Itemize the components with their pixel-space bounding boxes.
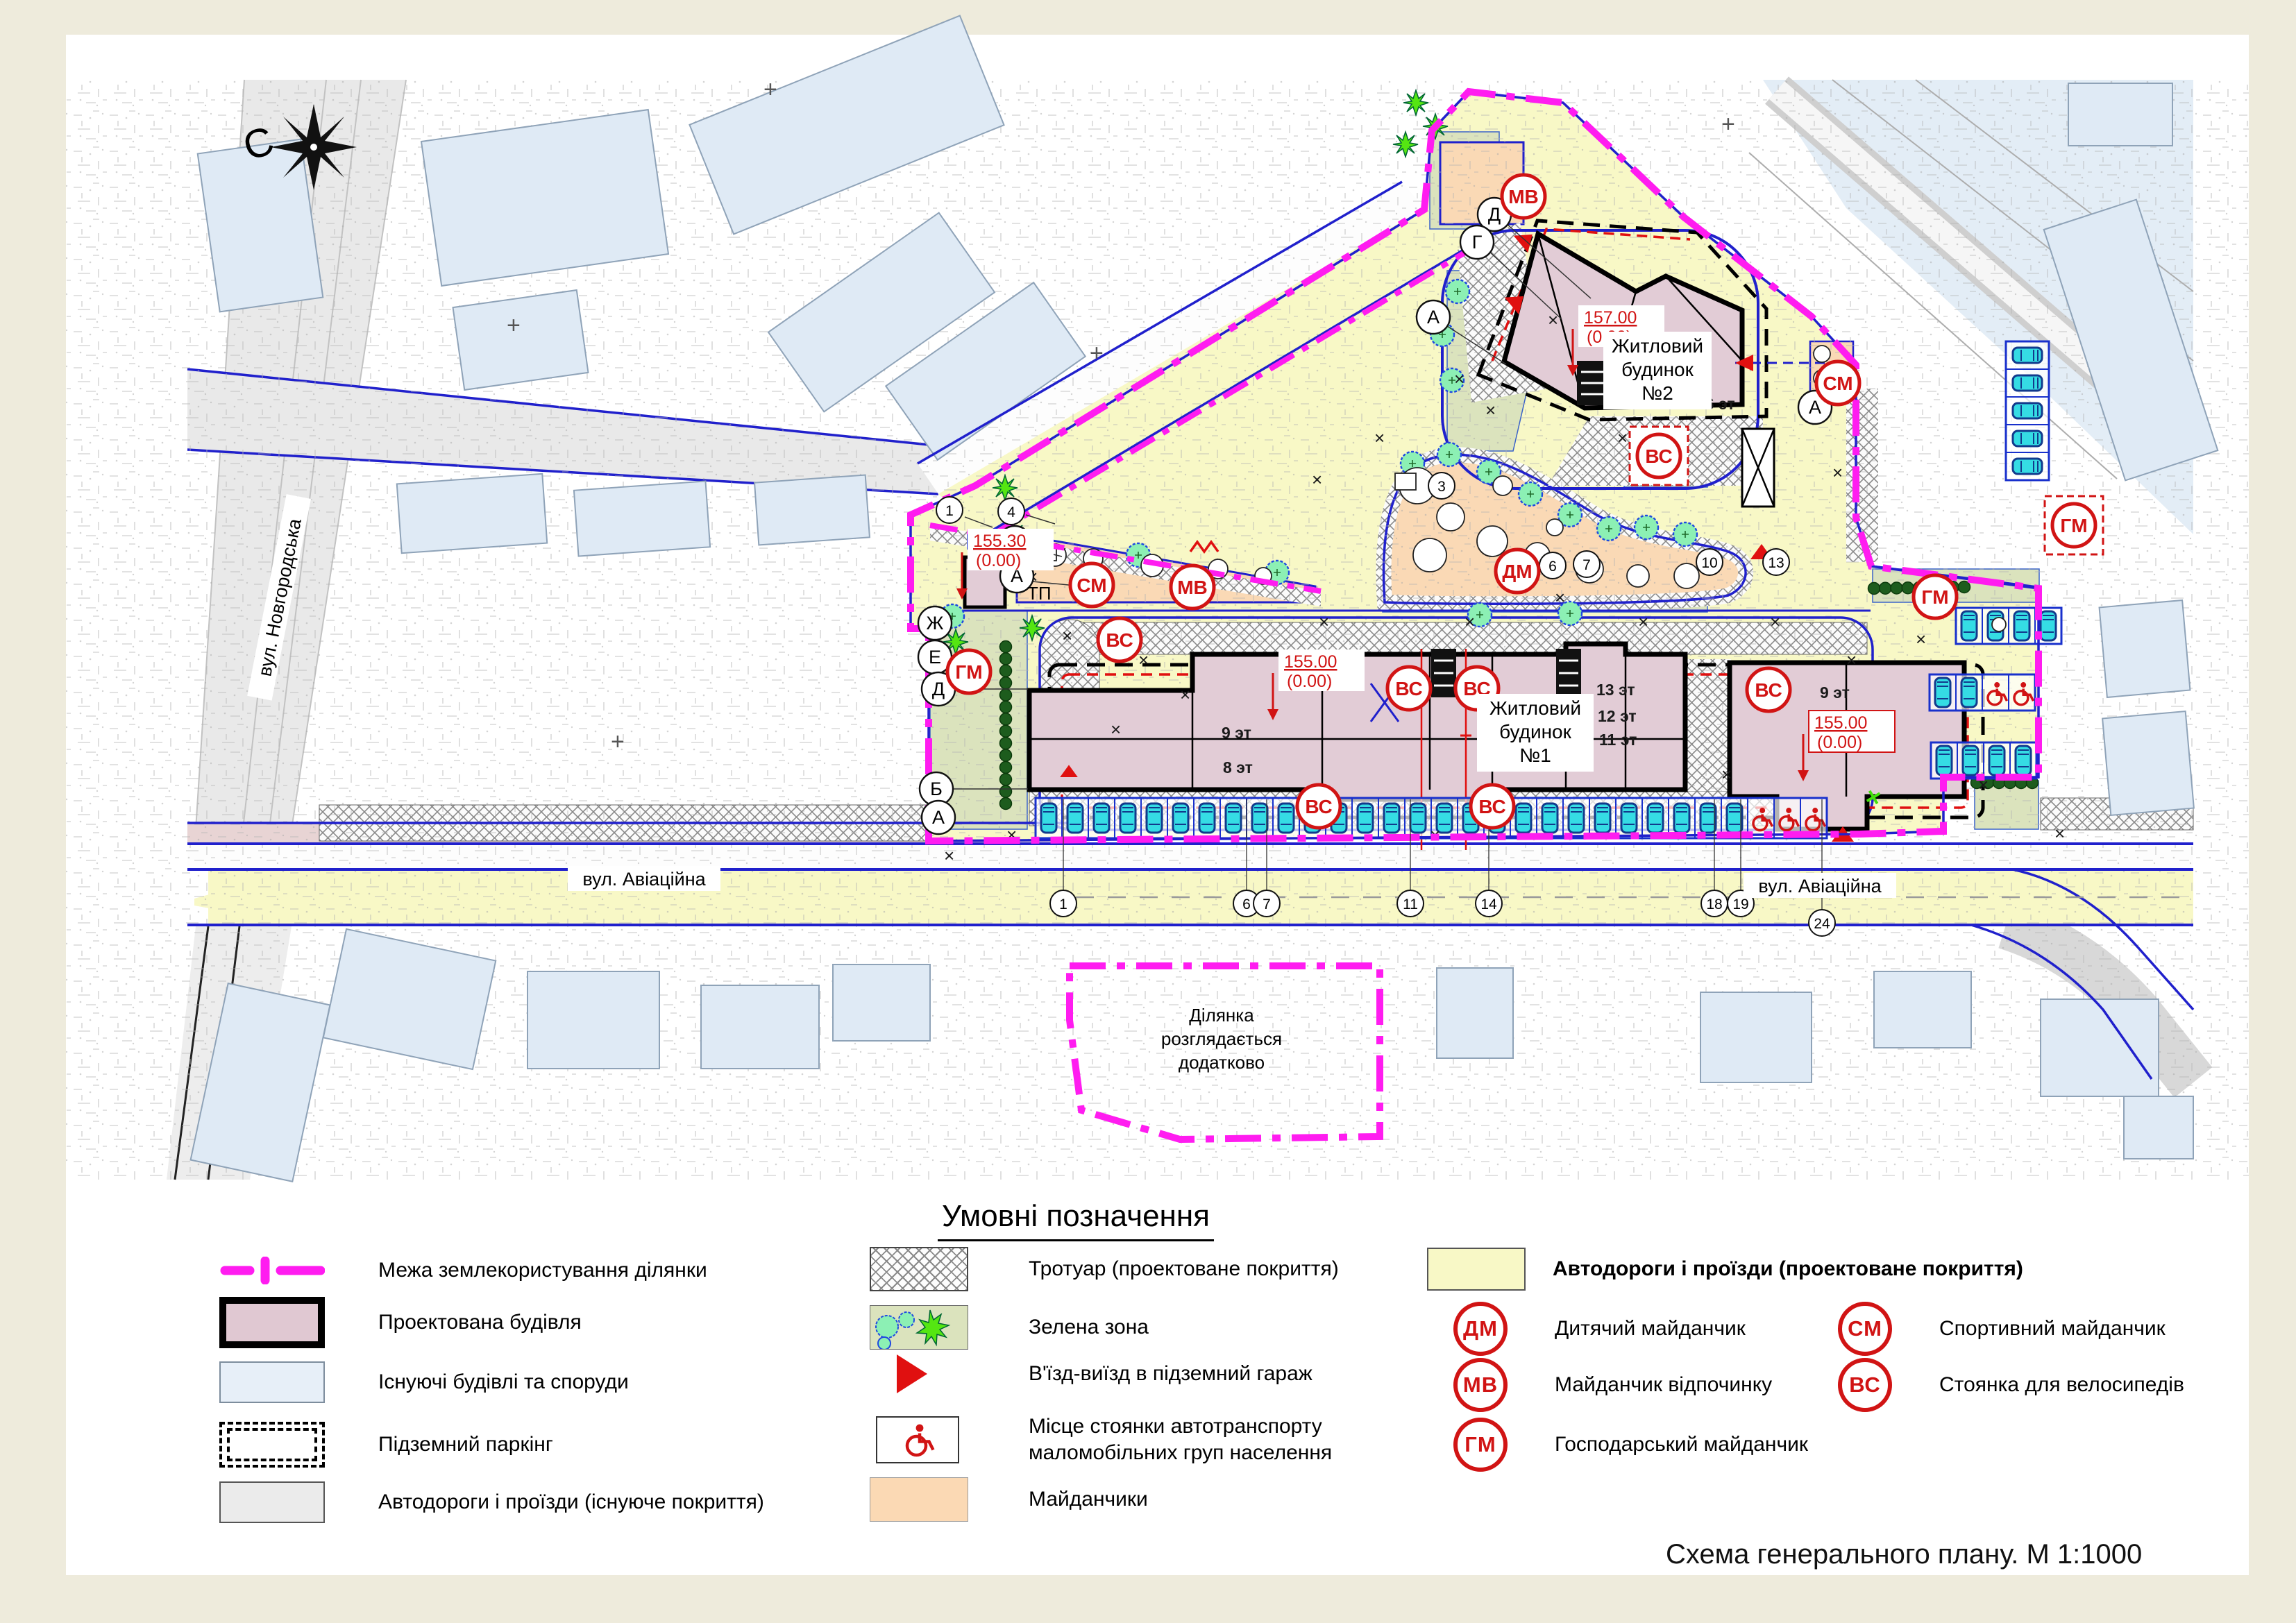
legend-swatch-disabled-parking	[876, 1416, 959, 1463]
legend-title: Умовні позначення	[938, 1199, 1214, 1241]
svg-text:ГМ: ГМ	[955, 661, 982, 683]
parking-stall	[1700, 804, 1716, 833]
legend-label-proposed-building: Проектована будівля	[378, 1311, 582, 1334]
parking-stall	[2013, 403, 2042, 418]
parking-row	[2006, 341, 2049, 480]
existing-building	[833, 965, 930, 1041]
svg-text:19: 19	[1732, 897, 1748, 912]
svg-text:Д: Д	[1488, 204, 1501, 225]
parking-stall	[1252, 804, 1267, 833]
existing-building	[1700, 992, 1812, 1082]
playground-equipment	[1493, 476, 1512, 495]
svg-text:розглядається: розглядається	[1161, 1028, 1282, 1049]
survey-plus-mark: +	[1721, 111, 1735, 137]
hedge-shrub	[1000, 689, 1012, 701]
hedge-shrub	[1000, 798, 1012, 810]
existing-building	[1874, 971, 1971, 1048]
survey-x-mark: ×	[1312, 469, 1322, 490]
svg-text:МВ: МВ	[1177, 577, 1208, 598]
axis-marker-А: А	[922, 801, 955, 834]
playground-equipment	[1413, 538, 1446, 572]
hedge-shrub	[1880, 582, 1891, 594]
svg-text:4: 4	[1007, 504, 1015, 520]
map-badge-ГМ: ГМ	[947, 650, 990, 693]
legend-swatch-proposed-building	[219, 1297, 325, 1348]
existing-building	[1437, 968, 1513, 1058]
svg-text:ВС: ВС	[1645, 445, 1672, 467]
svg-text:Д: Д	[932, 679, 945, 699]
parking-stall	[1384, 804, 1399, 833]
svg-text:(0.00): (0.00)	[1287, 672, 1332, 691]
survey-x-mark: ×	[1832, 462, 1843, 483]
legend-label-sidewalk: Тротуар (проектоване покриття)	[1029, 1257, 1339, 1281]
parking-row	[1956, 608, 2061, 644]
axis-marker-Ж: Ж	[918, 606, 952, 640]
svg-text:(0.00): (0.00)	[1817, 733, 1862, 752]
parking-stall	[2016, 746, 2031, 775]
legend-swatch-playgrounds	[870, 1477, 968, 1522]
parking-stall	[2013, 348, 2042, 363]
legend-label-vs: Стоянка для велосипедів	[1939, 1373, 2184, 1397]
legend-badge-sm: СМ	[1838, 1302, 1892, 1356]
point-marker-7: 7	[1573, 551, 1600, 577]
svg-text:А: А	[1809, 397, 1821, 418]
shrub-icon	[1393, 132, 1418, 157]
svg-text:№1: №1	[1519, 745, 1551, 766]
existing-building	[574, 481, 710, 556]
map-badge-СМ: СМ	[1070, 563, 1113, 606]
point-marker-4: 4	[998, 498, 1024, 525]
existing-building	[754, 475, 870, 545]
svg-text:Б: Б	[930, 779, 943, 799]
street-aviatsiina-right: вул. Авіаційна	[1758, 876, 1882, 897]
svg-text:Ділянка: Ділянка	[1189, 1005, 1254, 1026]
svg-text:Ж: Ж	[927, 613, 944, 634]
svg-text:155.00: 155.00	[1284, 652, 1337, 672]
survey-x-mark: ×	[1319, 611, 1329, 632]
legend-label-playgrounds: Майданчики	[1029, 1488, 1148, 1511]
svg-text:ВС: ВС	[1106, 629, 1133, 651]
parking-stall	[1963, 746, 1978, 775]
parking-stall	[1621, 804, 1637, 833]
svg-text:6: 6	[1548, 559, 1557, 575]
playground-equipment	[1477, 526, 1508, 556]
tp-label: ТП	[1027, 583, 1052, 604]
map-badge-МВ: МВ	[1171, 566, 1214, 609]
existing-building	[527, 971, 659, 1069]
floor-count-label: 13 эт	[1596, 681, 1635, 699]
street-aviatsiina-left: вул. Авіаційна	[582, 869, 706, 890]
svg-text:155.30: 155.30	[973, 532, 1026, 551]
legend-badge-mv: МВ	[1453, 1358, 1508, 1412]
map-badge-СМ: СМ	[1816, 362, 1859, 405]
survey-x-mark: ×	[1138, 649, 1149, 670]
legend-label-existing-buildings: Існуючі будівлі та споруди	[378, 1370, 629, 1394]
axis-marker-Г: Г	[1460, 226, 1494, 259]
hedge-shrub	[1902, 582, 1914, 594]
hedge-shrub	[1000, 713, 1012, 725]
parking-stall	[1989, 746, 2004, 775]
parking-stall	[1147, 804, 1162, 833]
playground-equipment	[1674, 563, 1699, 588]
svg-text:ВС: ВС	[1478, 796, 1505, 817]
map-badge-ВС: ВС	[1098, 618, 1141, 661]
floor-count-label: 8 эт	[1223, 758, 1253, 776]
svg-text:Г: Г	[1472, 232, 1483, 253]
tree-icon	[1635, 516, 1658, 539]
legend-label-boundary: Межа землекористування ділянки	[378, 1259, 707, 1282]
svg-text:3: 3	[1437, 479, 1446, 495]
legend-label-sm: Спортивний майданчик	[1939, 1317, 2166, 1341]
map-badge-МВ: МВ	[1502, 175, 1545, 218]
survey-x-mark: ×	[1916, 629, 1926, 649]
legend-swatch-roads-projected	[1427, 1248, 1526, 1291]
svg-text:Житловий: Житловий	[1612, 335, 1703, 357]
map-badge-ГМ: ГМ	[1914, 575, 1957, 618]
legend-swatch-green-zone	[870, 1305, 968, 1350]
survey-x-mark: ×	[944, 845, 954, 866]
svg-text:13: 13	[1768, 555, 1784, 571]
survey-x-mark: ×	[1062, 625, 1072, 646]
parking-stall	[1935, 678, 1950, 707]
tree-icon	[1437, 443, 1461, 466]
parking-stall	[1961, 678, 1977, 707]
shrub-icon	[993, 475, 1018, 500]
survey-x-mark: ×	[1770, 611, 1780, 632]
tree-icon	[1519, 482, 1542, 506]
legend-label-green-zone: Зелена зона	[1029, 1316, 1149, 1339]
point-marker-1: 1	[936, 497, 963, 523]
svg-text:ГМ: ГМ	[2060, 515, 2087, 536]
parking-stall	[1674, 804, 1689, 833]
svg-text:А: А	[932, 807, 945, 828]
map-badge-ВС: ВС	[1630, 427, 1688, 485]
building-1-label: Житловий будинок №1	[1477, 694, 1594, 772]
tree-icon	[1597, 517, 1621, 541]
parking-stall	[1936, 746, 1952, 775]
parking-stall	[1120, 804, 1136, 833]
legend-label-disabled-parking: Місце стоянки автотранспортумаломобільни…	[1029, 1413, 1332, 1466]
svg-text:(0.00): (0.00)	[976, 551, 1021, 570]
hedge-shrub	[1000, 749, 1012, 761]
playground-equipment	[1437, 503, 1464, 531]
map-badge-ВС: ВС	[1747, 668, 1790, 711]
playground-equipment	[1395, 473, 1416, 490]
existing-building	[2100, 600, 2191, 697]
survey-x-mark: ×	[1617, 427, 1628, 448]
survey-plus-mark: +	[1090, 340, 1104, 366]
parking-stall	[1067, 804, 1083, 833]
parking-stall	[1358, 804, 1373, 833]
legend-badge-dm: ДМ	[1453, 1302, 1508, 1356]
existing-building	[453, 290, 589, 390]
svg-text:СМ: СМ	[1077, 575, 1106, 596]
playground-equipment	[1546, 519, 1563, 536]
parking-stall	[1595, 804, 1610, 833]
parking-stall	[1041, 804, 1056, 833]
shrub-icon	[1403, 90, 1428, 115]
survey-x-mark: ×	[1454, 368, 1464, 389]
parking-stall	[1094, 804, 1109, 833]
svg-text:додатково: додатково	[1179, 1052, 1265, 1073]
hedge-shrub	[1000, 785, 1012, 797]
hedge-shrub	[1000, 677, 1012, 689]
hedge-shrub	[1000, 761, 1012, 773]
svg-text:6: 6	[1242, 897, 1251, 912]
existing-building	[701, 985, 819, 1069]
parking-stall	[1278, 804, 1294, 833]
legend-swatch-roads-existing	[219, 1481, 325, 1523]
svg-text:ВС: ВС	[1755, 679, 1782, 701]
svg-text:ДМ: ДМ	[1502, 561, 1532, 582]
hedge-shrub	[1891, 582, 1902, 594]
legend-badge-vs: ВС	[1838, 1358, 1892, 1412]
parking-stall	[1727, 804, 1742, 833]
floor-count-label: 9 эт	[1820, 683, 1850, 702]
parking-stall	[1410, 804, 1426, 833]
playground-equipment	[1814, 346, 1830, 362]
parking-stall	[1569, 804, 1584, 833]
svg-text:14: 14	[1480, 897, 1497, 912]
map-badge-ВС: ВС	[1297, 785, 1340, 828]
svg-text:24: 24	[1814, 916, 1830, 932]
svg-text:Житловий: Житловий	[1489, 697, 1581, 719]
parking-stall	[1648, 804, 1663, 833]
svg-text:№2: №2	[1641, 382, 1673, 404]
legend-label-gm: Господарський майданчик	[1555, 1433, 1808, 1456]
map-badge-ВС: ВС	[1387, 667, 1430, 710]
page: { "page":{"legend_title":"Умовні позначе…	[0, 0, 2296, 1623]
survey-x-mark: ×	[1721, 764, 1732, 785]
parking-stall	[1173, 804, 1188, 833]
svg-text:1: 1	[945, 503, 954, 519]
point-marker-13: 13	[1763, 549, 1789, 575]
svg-text:18: 18	[1706, 897, 1722, 912]
point-marker-6: 6	[1539, 552, 1566, 579]
floor-count-label: 12 эт	[1598, 707, 1637, 725]
legend-label-underground-parking: Підземний паркінг	[378, 1433, 553, 1456]
survey-x-mark: ×	[1374, 427, 1385, 448]
svg-text:11: 11	[1403, 897, 1418, 912]
hedge-shrub	[1000, 665, 1012, 677]
survey-x-mark: ×	[1638, 611, 1648, 632]
svg-text:А: А	[1427, 307, 1440, 328]
parking-stall	[2041, 611, 2056, 640]
drawing-title: Схема генерального плану. М 1:1000	[1666, 1539, 2142, 1570]
svg-text:Е: Е	[929, 647, 941, 668]
legend-label-mv: Майданчик відпочинку	[1555, 1373, 1772, 1397]
hedge-shrub	[1000, 701, 1012, 713]
parking-stall	[2013, 431, 2042, 446]
hedge-shrub	[1959, 581, 1970, 593]
svg-text:будинок: будинок	[1621, 359, 1694, 380]
parking-stall	[1516, 804, 1531, 833]
survey-plus-mark: +	[763, 76, 777, 103]
svg-text:1: 1	[1059, 897, 1067, 912]
floor-count-label: 9 эт	[1222, 724, 1251, 742]
legend-swatch-underground-parking	[219, 1422, 325, 1468]
survey-x-mark: ×	[1111, 719, 1121, 740]
svg-text:157.00: 157.00	[1584, 308, 1637, 328]
svg-text:ВС: ВС	[1395, 678, 1422, 699]
legend-label-roads-projected: Автодороги і проїзди (проектоване покрит…	[1553, 1257, 2023, 1281]
survey-x-mark: ×	[1548, 309, 1558, 330]
existing-building	[421, 110, 668, 286]
svg-text:МВ: МВ	[1508, 186, 1539, 207]
survey-plus-mark: +	[507, 312, 521, 339]
map-badge-ДМ: ДМ	[1496, 550, 1539, 593]
playground-equipment	[1627, 565, 1649, 587]
map-badge-ВС: ВС	[1471, 785, 1514, 828]
point-marker-3: 3	[1428, 473, 1455, 499]
survey-x-mark: ×	[1846, 649, 1857, 670]
tree-icon	[1673, 522, 1697, 546]
hedge-shrub	[1000, 738, 1012, 749]
parking-row	[1930, 674, 2035, 711]
svg-text:155.00: 155.00	[1814, 713, 1867, 733]
map-badge-ГМ: ГМ	[2045, 496, 2103, 554]
hedge-shrub	[1000, 653, 1012, 665]
legend-swatch-existing-buildings	[219, 1361, 325, 1403]
parking-stall	[2014, 611, 2029, 640]
survey-x-mark: ×	[1180, 684, 1190, 705]
survey-x-mark: ×	[1485, 400, 1496, 420]
playground-equipment	[1992, 618, 2006, 631]
parking-stall	[2013, 375, 2042, 391]
parking-stall	[1961, 611, 1977, 640]
survey-x-mark: ×	[2054, 823, 2065, 844]
axis-marker-А: А	[1417, 300, 1450, 334]
hedge-shrub	[1868, 583, 1880, 595]
legend-label-garage-entry: В'їзд-виїзд в підземний гараж	[1029, 1362, 1312, 1386]
floor-count-label: 11 эт	[1599, 731, 1637, 749]
survey-plus-mark: +	[611, 729, 625, 755]
hedge-shrub	[1000, 774, 1012, 785]
building-2-label: Житловий будинок №2	[1603, 332, 1712, 409]
svg-text:СМ: СМ	[1823, 373, 1852, 394]
legend-label-roads-existing: Автодороги і проїзди (існуюче покриття)	[378, 1490, 764, 1514]
hedge-shrub	[1000, 725, 1012, 737]
legend-badge-gm: ГМ	[1453, 1418, 1508, 1472]
existing-building	[397, 474, 547, 553]
parking-stall	[1199, 804, 1215, 833]
parking-stall	[1226, 804, 1241, 833]
parking-stall	[2013, 459, 2042, 474]
svg-text:10: 10	[1701, 555, 1717, 571]
parking-row	[1931, 742, 2036, 779]
legend-swatch-sidewalk	[870, 1247, 968, 1291]
survey-x-mark: ×	[1555, 587, 1565, 608]
existing-building	[2124, 1096, 2193, 1159]
site-plan-map: × ××××××××××××××××××××××××××+++++ ЖЕДБАВ…	[0, 0, 2296, 1200]
svg-text:7: 7	[1582, 557, 1591, 573]
point-marker-10: 10	[1696, 549, 1723, 575]
legend-label-dm: Дитячий майданчик	[1555, 1317, 1746, 1341]
existing-building	[2102, 711, 2194, 815]
existing-building	[2068, 83, 2172, 146]
legend-swatch-garage-entry	[897, 1354, 927, 1393]
parking-stall	[1542, 804, 1558, 833]
svg-text:ГМ: ГМ	[1921, 586, 1948, 608]
shrub-icon	[1020, 615, 1045, 640]
svg-text:7: 7	[1263, 897, 1271, 912]
tree-icon	[1446, 280, 1469, 303]
svg-text:будинок: будинок	[1499, 721, 1572, 742]
hedge-shrub	[1000, 641, 1012, 653]
survey-x-mark: ×	[1464, 611, 1475, 632]
legend-swatch-boundary	[219, 1257, 325, 1284]
svg-text:ВС: ВС	[1305, 796, 1332, 817]
existing-building	[2041, 999, 2159, 1096]
